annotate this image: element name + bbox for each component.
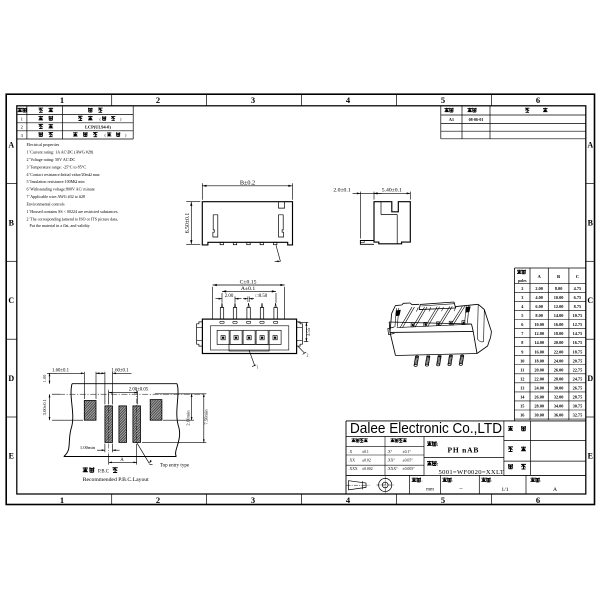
svg-text:D: D xyxy=(8,374,14,383)
svg-text:Electrical properties: Electrical properties xyxy=(27,142,60,147)
svg-text:poles: poles xyxy=(518,279,527,283)
svg-text:7.50min: 7.50min xyxy=(203,409,208,425)
svg-text:□0.50: □0.50 xyxy=(256,294,268,299)
svg-text:±0.002: ±0.002 xyxy=(362,467,373,471)
svg-text:24.75: 24.75 xyxy=(573,376,583,381)
svg-text:2.00±0.05: 2.00±0.05 xyxy=(129,387,149,392)
svg-text:1.00: 1.00 xyxy=(42,375,47,383)
svg-text:±0.1°: ±0.1° xyxy=(403,450,412,454)
svg-text:28.00: 28.00 xyxy=(554,376,564,381)
svg-text:3: 3 xyxy=(251,95,255,105)
svg-text:PH nAB: PH nAB xyxy=(447,446,479,455)
svg-text:18.00: 18.00 xyxy=(534,358,544,363)
svg-text:32.75: 32.75 xyxy=(573,413,583,418)
svg-text:±0.005°: ±0.005° xyxy=(403,467,416,471)
svg-text:1: 1 xyxy=(60,495,64,505)
svg-text:12.00: 12.00 xyxy=(554,304,564,309)
svg-text:24.00: 24.00 xyxy=(534,385,544,390)
svg-text::: : xyxy=(452,478,453,483)
svg-text:15: 15 xyxy=(520,404,524,409)
svg-text:28.75: 28.75 xyxy=(573,395,583,400)
svg-text:±0.1: ±0.1 xyxy=(362,450,369,454)
svg-text:36.00: 36.00 xyxy=(554,413,564,418)
svg-text:Recommended P.B.C.Layout: Recommended P.B.C.Layout xyxy=(83,477,149,483)
svg-text:C±0.15: C±0.15 xyxy=(240,280,257,286)
svg-text:2.00: 2.00 xyxy=(225,294,234,299)
svg-text:.X: .X xyxy=(349,450,353,454)
svg-text:.X°: .X° xyxy=(387,450,393,454)
svg-text:A±0.1: A±0.1 xyxy=(241,286,255,292)
svg-text:26.00: 26.00 xyxy=(554,367,564,372)
svg-text:10.75: 10.75 xyxy=(573,313,583,318)
svg-text:E: E xyxy=(9,452,14,461)
svg-text:B: B xyxy=(557,274,560,279)
svg-text:10.00: 10.00 xyxy=(534,322,544,327)
svg-text:32.00: 32.00 xyxy=(554,395,564,400)
svg-text:6: 6 xyxy=(536,95,540,105)
svg-text:A: A xyxy=(120,458,124,463)
svg-text:2.00: 2.00 xyxy=(535,286,543,291)
svg-text:5 'Insulation resistance:100MΩ: 5 'Insulation resistance:100MΩ min xyxy=(27,179,85,184)
svg-text:C: C xyxy=(8,296,14,305)
svg-text::: : xyxy=(540,478,541,483)
svg-text:A: A xyxy=(553,487,557,493)
svg-text:4 'Contact resistance:Initial: 4 'Contact resistance:Initial value/20mΩ… xyxy=(27,172,100,177)
svg-text:C: C xyxy=(587,296,593,305)
svg-text:8.00: 8.00 xyxy=(535,313,543,318)
svg-text:5: 5 xyxy=(521,313,523,318)
svg-text:10.00: 10.00 xyxy=(554,295,564,300)
svg-text:6: 6 xyxy=(536,495,540,505)
svg-text:±0.02: ±0.02 xyxy=(362,459,371,463)
svg-text:mm: mm xyxy=(426,488,434,493)
svg-text:1 'Housed contains SS < 00224: 1 'Housed contains SS < 00224 are restri… xyxy=(27,209,119,214)
svg-text:16.75: 16.75 xyxy=(573,340,583,345)
svg-text:3: 3 xyxy=(521,295,523,300)
svg-text::: : xyxy=(491,478,492,483)
svg-text:2: 2 xyxy=(521,286,523,291)
svg-text:--: -- xyxy=(459,486,463,492)
svg-text:8.00: 8.00 xyxy=(555,286,563,291)
svg-text:3.55: 3.55 xyxy=(307,327,312,336)
svg-text:LCP(UL94-0): LCP(UL94-0) xyxy=(85,124,111,129)
svg-text::: : xyxy=(421,478,422,483)
svg-text:20.75: 20.75 xyxy=(573,358,583,363)
svg-text:1.60±0.1: 1.60±0.1 xyxy=(52,369,70,374)
svg-text:20.00: 20.00 xyxy=(554,340,564,345)
svg-text::: : xyxy=(437,442,439,448)
svg-text:16.00: 16.00 xyxy=(534,349,544,354)
svg-text:26.75: 26.75 xyxy=(573,385,583,390)
svg-text:D: D xyxy=(587,374,593,383)
svg-text:13: 13 xyxy=(520,385,524,390)
svg-text:8: 8 xyxy=(521,340,523,345)
svg-text:A: A xyxy=(8,141,14,150)
svg-text:.XXX°: .XXX° xyxy=(387,467,398,471)
svg-text:Environmental controls: Environmental controls xyxy=(27,202,66,207)
svg-text:26.00: 26.00 xyxy=(534,395,544,400)
svg-text:Dalee Electronic Co.,LTD: Dalee Electronic Co.,LTD xyxy=(350,421,502,437)
svg-text:6.50±0.1: 6.50±0.1 xyxy=(185,213,191,234)
svg-text:7 'Applicable wire:AWG #32 to: 7 'Applicable wire:AWG #32 to #28 xyxy=(27,194,86,199)
svg-text:22.75: 22.75 xyxy=(573,367,583,372)
svg-text:5001=WF0020=XXLT: 5001=WF0020=XXLT xyxy=(439,469,504,476)
svg-text:2.00min: 2.00min xyxy=(186,410,191,426)
svg-text:22.00: 22.00 xyxy=(554,349,564,354)
svg-text:14.00: 14.00 xyxy=(554,313,564,318)
svg-text:24.00: 24.00 xyxy=(554,358,564,363)
svg-text:6 'Withstanding voltage:800V A: 6 'Withstanding voltage:800V AC/ minute xyxy=(27,187,95,192)
svg-text:28.00: 28.00 xyxy=(534,404,544,409)
svg-text:4.00: 4.00 xyxy=(535,295,543,300)
svg-text:12: 12 xyxy=(520,376,524,381)
svg-text:Top entry type: Top entry type xyxy=(160,463,190,468)
svg-text:C: C xyxy=(576,274,579,279)
svg-text:4.75: 4.75 xyxy=(574,286,582,291)
svg-text:30.75: 30.75 xyxy=(573,404,583,409)
svg-text:14.75: 14.75 xyxy=(573,331,583,336)
svg-text:1/1: 1/1 xyxy=(501,487,508,493)
svg-text:B: B xyxy=(588,218,594,227)
svg-text:6.75: 6.75 xyxy=(574,295,582,300)
svg-text:1 'Current rating: 1A AC\DC (A: 1 'Current rating: 1A AC\DC (AWG #28) xyxy=(27,150,94,155)
svg-text:08-06-01: 08-06-01 xyxy=(469,117,484,122)
svg-text:6.00: 6.00 xyxy=(535,304,543,309)
svg-text:3.00±0.1: 3.00±0.1 xyxy=(42,398,47,415)
svg-text:3: 3 xyxy=(251,495,255,505)
svg-text:.XX°: .XX° xyxy=(387,459,395,463)
svg-text:3 'Temperature range: -25°C to: 3 'Temperature range: -25°C to 85°C xyxy=(27,165,87,170)
svg-text:A1: A1 xyxy=(449,117,454,122)
svg-text:14.00: 14.00 xyxy=(534,340,544,345)
svg-text:1: 1 xyxy=(257,366,259,370)
svg-text:12.00: 12.00 xyxy=(534,331,544,336)
svg-text:18.00: 18.00 xyxy=(554,331,564,336)
svg-text:9: 9 xyxy=(521,349,523,354)
svg-text:B±0.2: B±0.2 xyxy=(240,179,255,186)
svg-text:5: 5 xyxy=(441,495,445,505)
svg-text:30.00: 30.00 xyxy=(554,385,564,390)
svg-text:8.75: 8.75 xyxy=(574,304,582,309)
svg-text:34.00: 34.00 xyxy=(554,404,564,409)
svg-text:5: 5 xyxy=(441,95,445,105)
svg-text:1: 1 xyxy=(60,95,64,105)
svg-text:18.75: 18.75 xyxy=(573,349,583,354)
svg-text:22.00: 22.00 xyxy=(534,376,544,381)
svg-text:1.60±0.1: 1.60±0.1 xyxy=(111,369,129,374)
svg-text:2.0±0.1: 2.0±0.1 xyxy=(333,188,350,194)
svg-text:.XX: .XX xyxy=(349,459,356,463)
svg-text:20.00: 20.00 xyxy=(534,367,544,372)
svg-text:2: 2 xyxy=(156,95,160,105)
svg-text:5.40±0.1: 5.40±0.1 xyxy=(382,188,402,194)
svg-text:P.B.C: P.B.C xyxy=(98,469,109,474)
svg-text:16.00: 16.00 xyxy=(554,322,564,327)
svg-text:11: 11 xyxy=(520,367,524,372)
svg-text:10: 10 xyxy=(520,358,524,363)
svg-text:E: E xyxy=(588,452,593,461)
svg-text:A: A xyxy=(587,141,593,150)
svg-text::: : xyxy=(437,462,439,468)
svg-text:B: B xyxy=(9,218,15,227)
svg-text:2: 2 xyxy=(156,495,160,505)
svg-text:2: 2 xyxy=(307,354,309,358)
svg-text:.XXX: .XXX xyxy=(349,467,358,471)
svg-text:30.00: 30.00 xyxy=(534,413,544,418)
svg-text:2 'Voltage rating: 50V AC\DC: 2 'Voltage rating: 50V AC\DC xyxy=(27,157,76,162)
svg-text:12.75: 12.75 xyxy=(573,322,583,327)
svg-text:±0.05°: ±0.05° xyxy=(403,459,414,463)
svg-text:1.00min: 1.00min xyxy=(80,445,96,450)
